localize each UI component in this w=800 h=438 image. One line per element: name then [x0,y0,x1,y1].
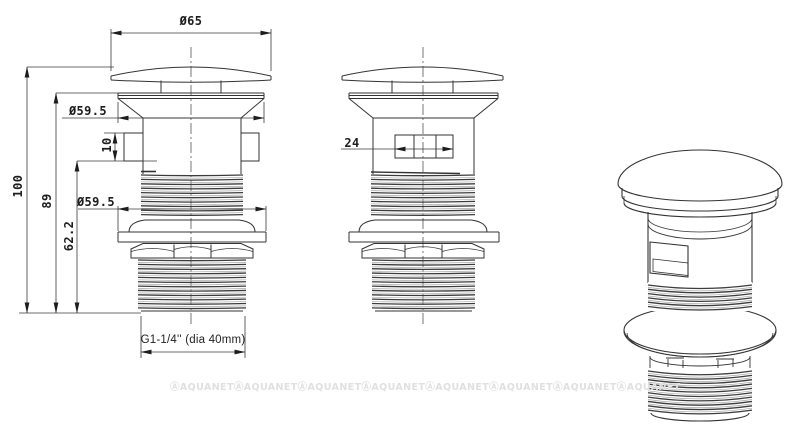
label-overall-height: 100 [11,175,25,198]
lower-threads [372,260,475,309]
technical-drawing-svg [0,0,800,438]
label-slot-height: 10 [100,137,114,152]
flange-plate [349,93,498,118]
nut-band-3d [650,356,750,368]
label-flange-diameter-top: Ø59.5 [69,104,107,118]
flange-disc [624,306,776,354]
label-overflow-window-width: 24 [344,136,359,150]
cap-dome [618,150,782,201]
body-cylinder [648,212,752,283]
label-thread-spec: G1-1/4'' (dia 40mm) [141,334,246,346]
isometric-view [618,150,782,421]
valve-body [124,118,259,174]
label-washer-diameter: Ø59.5 [77,195,115,209]
cap-outline [342,67,503,82]
lower-threads [138,260,246,309]
washer [118,232,266,242]
front-middle-view [342,47,503,324]
right-tab [241,133,259,161]
front-left-view [111,47,271,324]
drawing-canvas: Ø65 Ø59.5 10 100 89 Ø59.5 62.2 G1-1/4'' … [0,0,800,438]
label-cap-diameter: Ø65 [180,14,203,28]
valve-body [371,118,474,174]
label-height-flange-to-bottom: 89 [40,193,54,208]
hex-nut [131,244,253,259]
ext-lines-d595-bottom [118,206,266,231]
gasket [129,220,255,232]
label-height-slot-to-bottom: 62.2 [62,221,76,252]
washer [349,232,499,242]
lower-threads-3d [648,371,752,414]
overflow-window [395,135,453,158]
left-tab [124,133,143,161]
